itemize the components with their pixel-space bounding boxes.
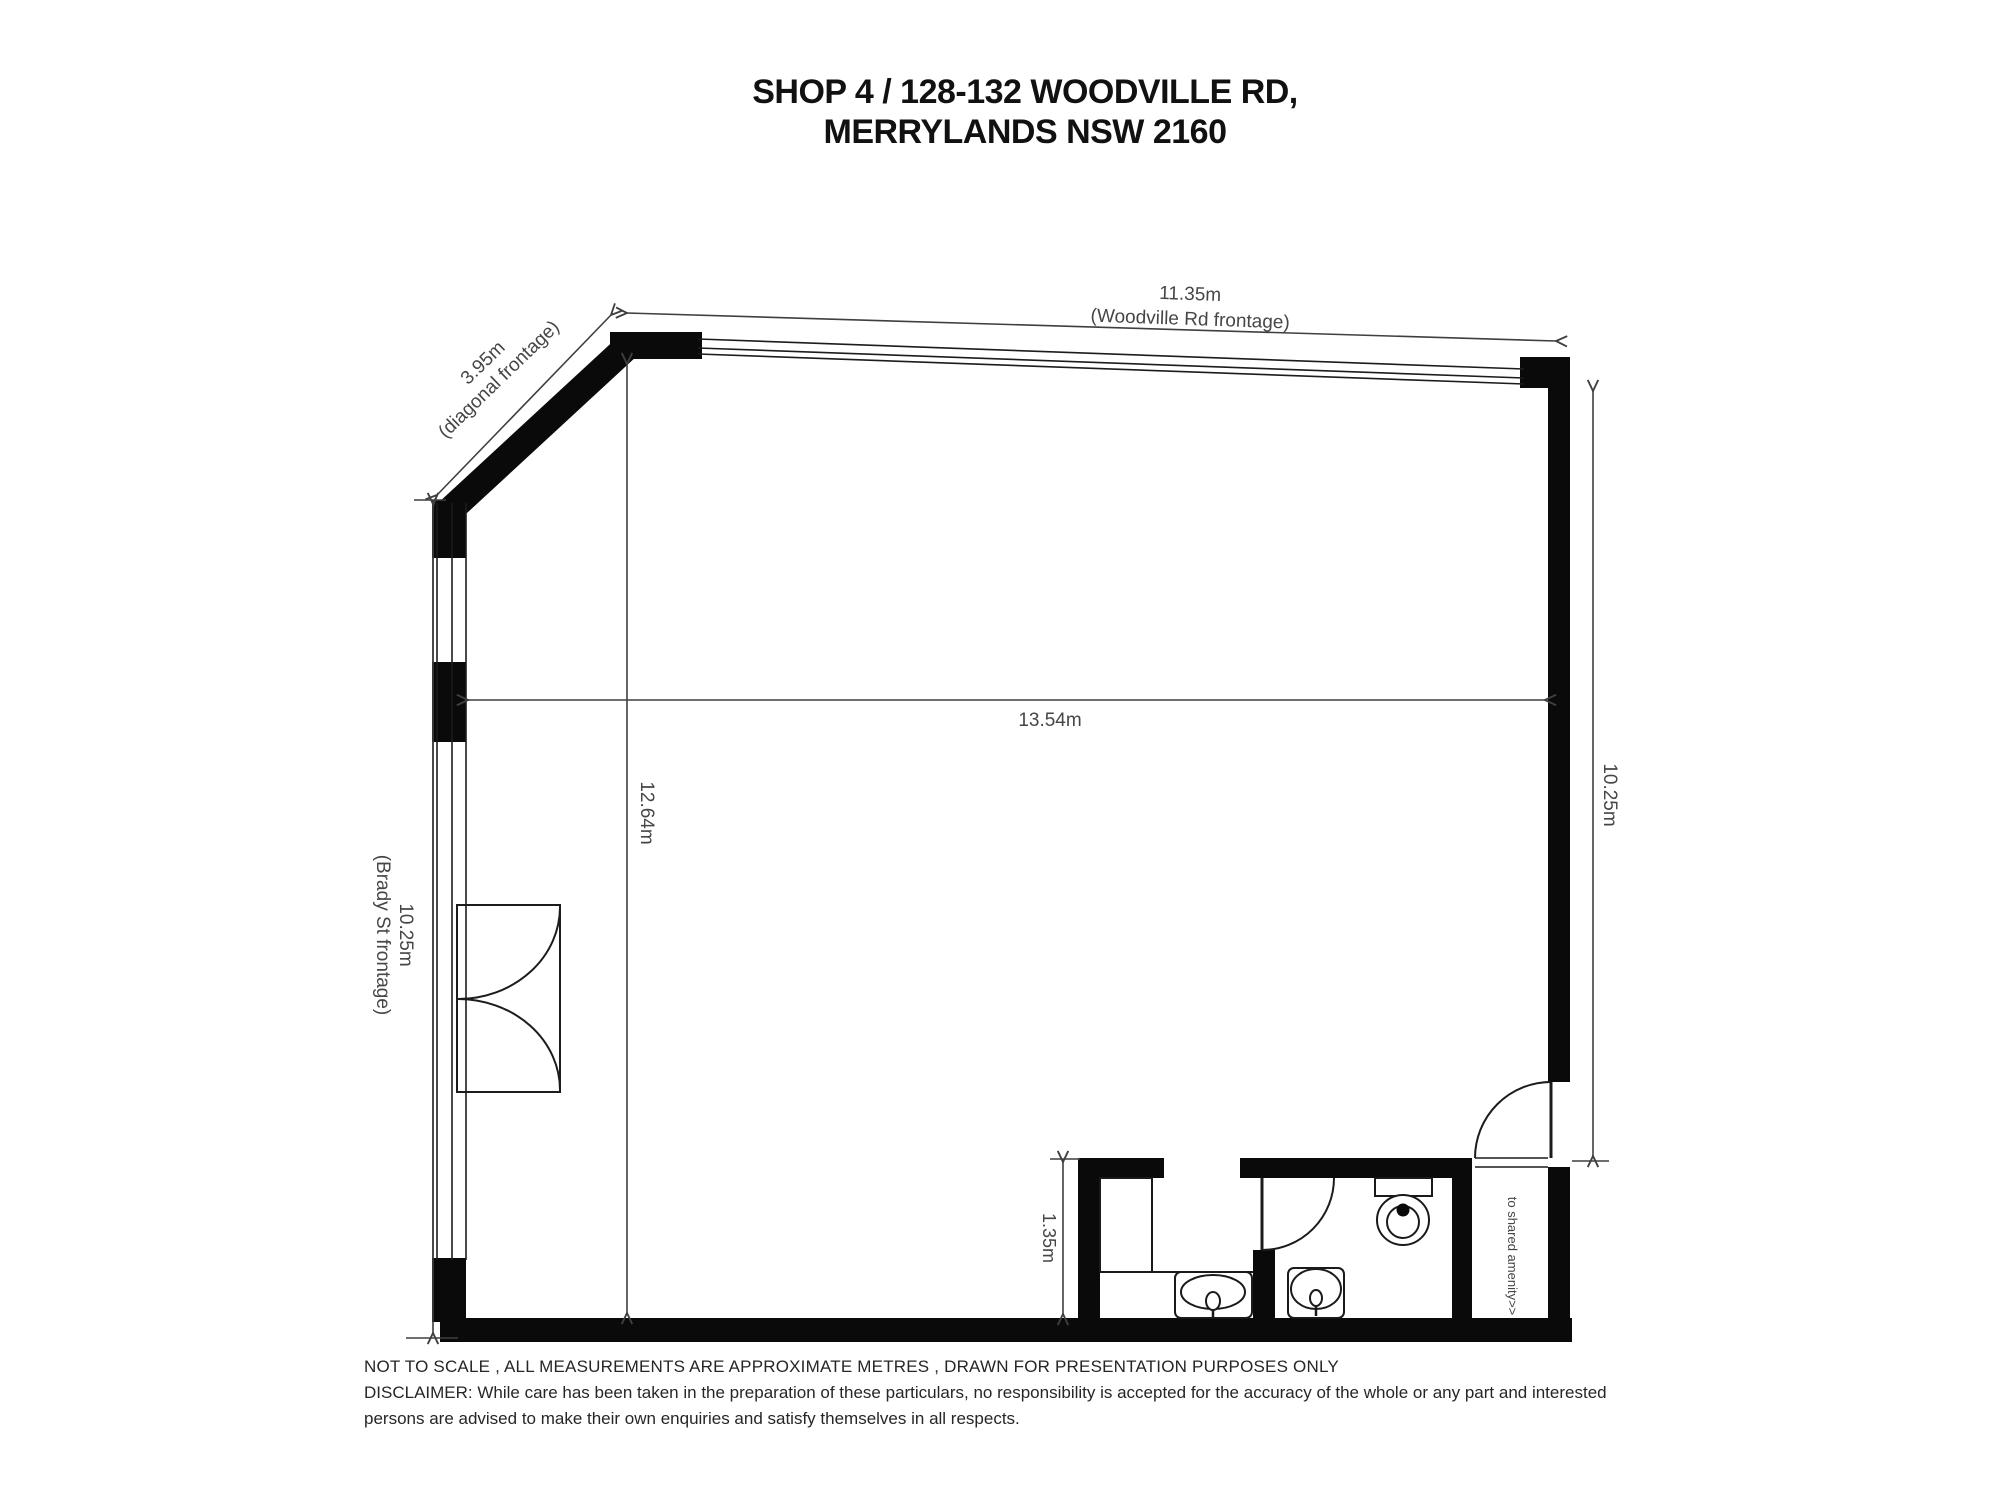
- floor-plan-page: SHOP 4 / 128-132 WOODVILLE RD, MERRYLAND…: [0, 0, 2000, 1500]
- dim-woodville-label: (Woodville Rd frontage): [1090, 306, 1290, 334]
- plan-footer: NOT TO SCALE , ALL MEASUREMENTS ARE APPR…: [364, 1354, 1764, 1432]
- wall-amenity-top-right: [1240, 1158, 1454, 1178]
- glazing: [433, 339, 1524, 1260]
- dim-width-value: 13.54m: [1018, 710, 1081, 731]
- dim-depth-value: 12.64m: [636, 781, 657, 844]
- wall-left-seg3: [432, 1258, 466, 1322]
- sink-left: [1175, 1272, 1252, 1318]
- shared-amenity-note: to shared amenity>>: [1505, 1197, 1520, 1316]
- right-door-swing: [1475, 1082, 1551, 1158]
- dim-amenities-value: 1.35m: [1039, 1213, 1059, 1263]
- doors: [457, 905, 1551, 1250]
- wall-right-upper: [1548, 358, 1570, 1082]
- toilet: [1375, 1178, 1432, 1245]
- footer-disclaimer-line1: DISCLAIMER: While care has been taken in…: [364, 1380, 1764, 1406]
- shopfront-glass-line: [698, 339, 1524, 369]
- wall-right-lower: [1548, 1167, 1570, 1342]
- dim-right-value: 10.25m: [1599, 763, 1620, 826]
- floor-plan-drawing: 11.35m (Woodville Rd frontage) 3.95m (di…: [0, 0, 2000, 1500]
- footer-disclaimer-line2: persons are advised to make their own en…: [364, 1406, 1764, 1432]
- wall-amenity-top-left: [1078, 1158, 1164, 1178]
- bathroom-door-swing: [1262, 1178, 1334, 1250]
- wall-bottom: [440, 1318, 1572, 1342]
- sink-right: [1288, 1268, 1344, 1318]
- footer-scale-note: NOT TO SCALE , ALL MEASUREMENTS ARE APPR…: [364, 1354, 1764, 1380]
- entry-double-door: [457, 905, 560, 1092]
- bathroom-door: [1262, 1178, 1334, 1250]
- shopfront-glass-line: [698, 354, 1524, 384]
- wall-amenity-left-partition: [1078, 1158, 1100, 1320]
- dim-woodville-value: 11.35m: [1159, 283, 1222, 306]
- sink-left-tap: [1206, 1292, 1220, 1310]
- entry-door-swing-bottom: [458, 999, 560, 1090]
- dim-brady-value: 10.25m: [395, 903, 416, 966]
- sink-right-tap: [1310, 1290, 1322, 1306]
- entry-door-swing-top: [458, 907, 560, 999]
- wall-amenity-right: [1452, 1158, 1472, 1320]
- cupboard: [1100, 1178, 1152, 1272]
- wall-top-left: [610, 332, 702, 359]
- toilet-flush-dot: [1397, 1204, 1410, 1217]
- dim-brady-label: (Brady St frontage): [372, 855, 393, 1016]
- shopfront-glass-line: [698, 348, 1524, 378]
- toilet-cistern: [1375, 1178, 1432, 1196]
- right-wall-door: [1475, 1082, 1551, 1167]
- wall-amenity-divider-stub: [1253, 1250, 1275, 1320]
